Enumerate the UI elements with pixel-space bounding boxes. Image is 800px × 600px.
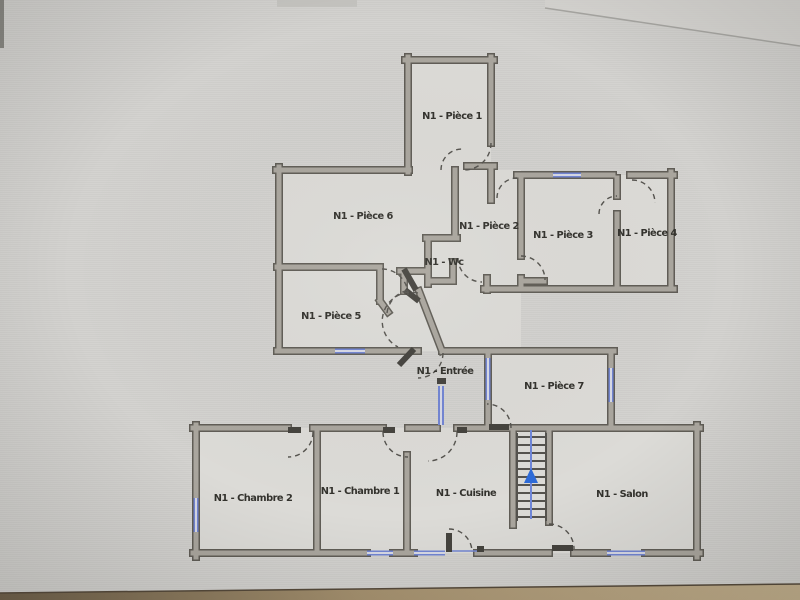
floor-plan-canvas: N1 - Pièce 1 N1 - Pièce 6 N1 - Pièce 2 N…: [0, 0, 800, 600]
photo-vignette: [0, 0, 800, 600]
floor-plan-photo: N1 - Pièce 1 N1 - Pièce 6 N1 - Pièce 2 N…: [0, 0, 800, 600]
